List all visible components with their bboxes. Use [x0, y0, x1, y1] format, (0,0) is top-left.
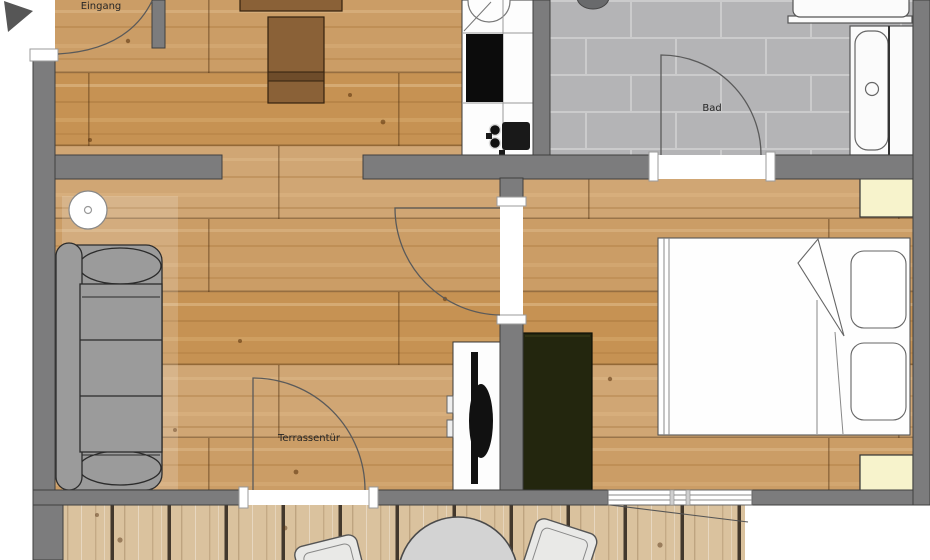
- wall-cap: [497, 197, 526, 206]
- wall-cap: [369, 487, 378, 508]
- entrance-door-gap: [33, 0, 55, 50]
- wall-kitchen-bath: [533, 0, 550, 155]
- pillow-bottom: [851, 343, 906, 420]
- bathtub: [850, 26, 913, 155]
- wall-cap: [497, 315, 526, 324]
- terrace-door-label: Terrassentür: [277, 433, 341, 444]
- cooktop: [466, 34, 503, 102]
- wardrobe: [523, 333, 592, 490]
- side-table: [69, 191, 107, 229]
- dining-chair: [268, 17, 324, 103]
- entrance-label: Eingang: [81, 1, 122, 12]
- nightstand-bottom: [860, 455, 913, 493]
- pillow-top: [851, 251, 906, 328]
- bedroom-door-gap: [500, 203, 523, 320]
- wall-bottom-2: [377, 490, 608, 505]
- wall-cap: [239, 487, 248, 508]
- wall-kitchen-living: [363, 155, 657, 179]
- wall-bottom-3: [752, 490, 913, 505]
- bathroom-label: Bad: [702, 103, 721, 114]
- wall-bottom-1: [33, 490, 240, 505]
- wall-hall-living: [55, 155, 222, 179]
- wall-left: [33, 53, 55, 490]
- terrace-door-gap: [247, 490, 370, 505]
- washbasin: [788, 0, 912, 23]
- sofa: [56, 243, 162, 490]
- kitchen-counter: [462, 0, 533, 156]
- wall-cap: [30, 49, 58, 61]
- nightstand-top: [860, 178, 913, 217]
- wall-cap: [649, 152, 658, 181]
- dining-table: [240, 0, 342, 11]
- wall-living-bedroom-bottom: [500, 320, 523, 490]
- wall-bath-bedroom: [767, 155, 913, 179]
- floor-plan: Eingang Bad Terrassentür: [0, 0, 930, 560]
- bathroom-door-gap: [657, 155, 767, 179]
- wall-entrance-stub: [152, 0, 165, 48]
- bed: [658, 238, 910, 435]
- wall-cap: [766, 152, 775, 181]
- wall-right: [913, 0, 930, 505]
